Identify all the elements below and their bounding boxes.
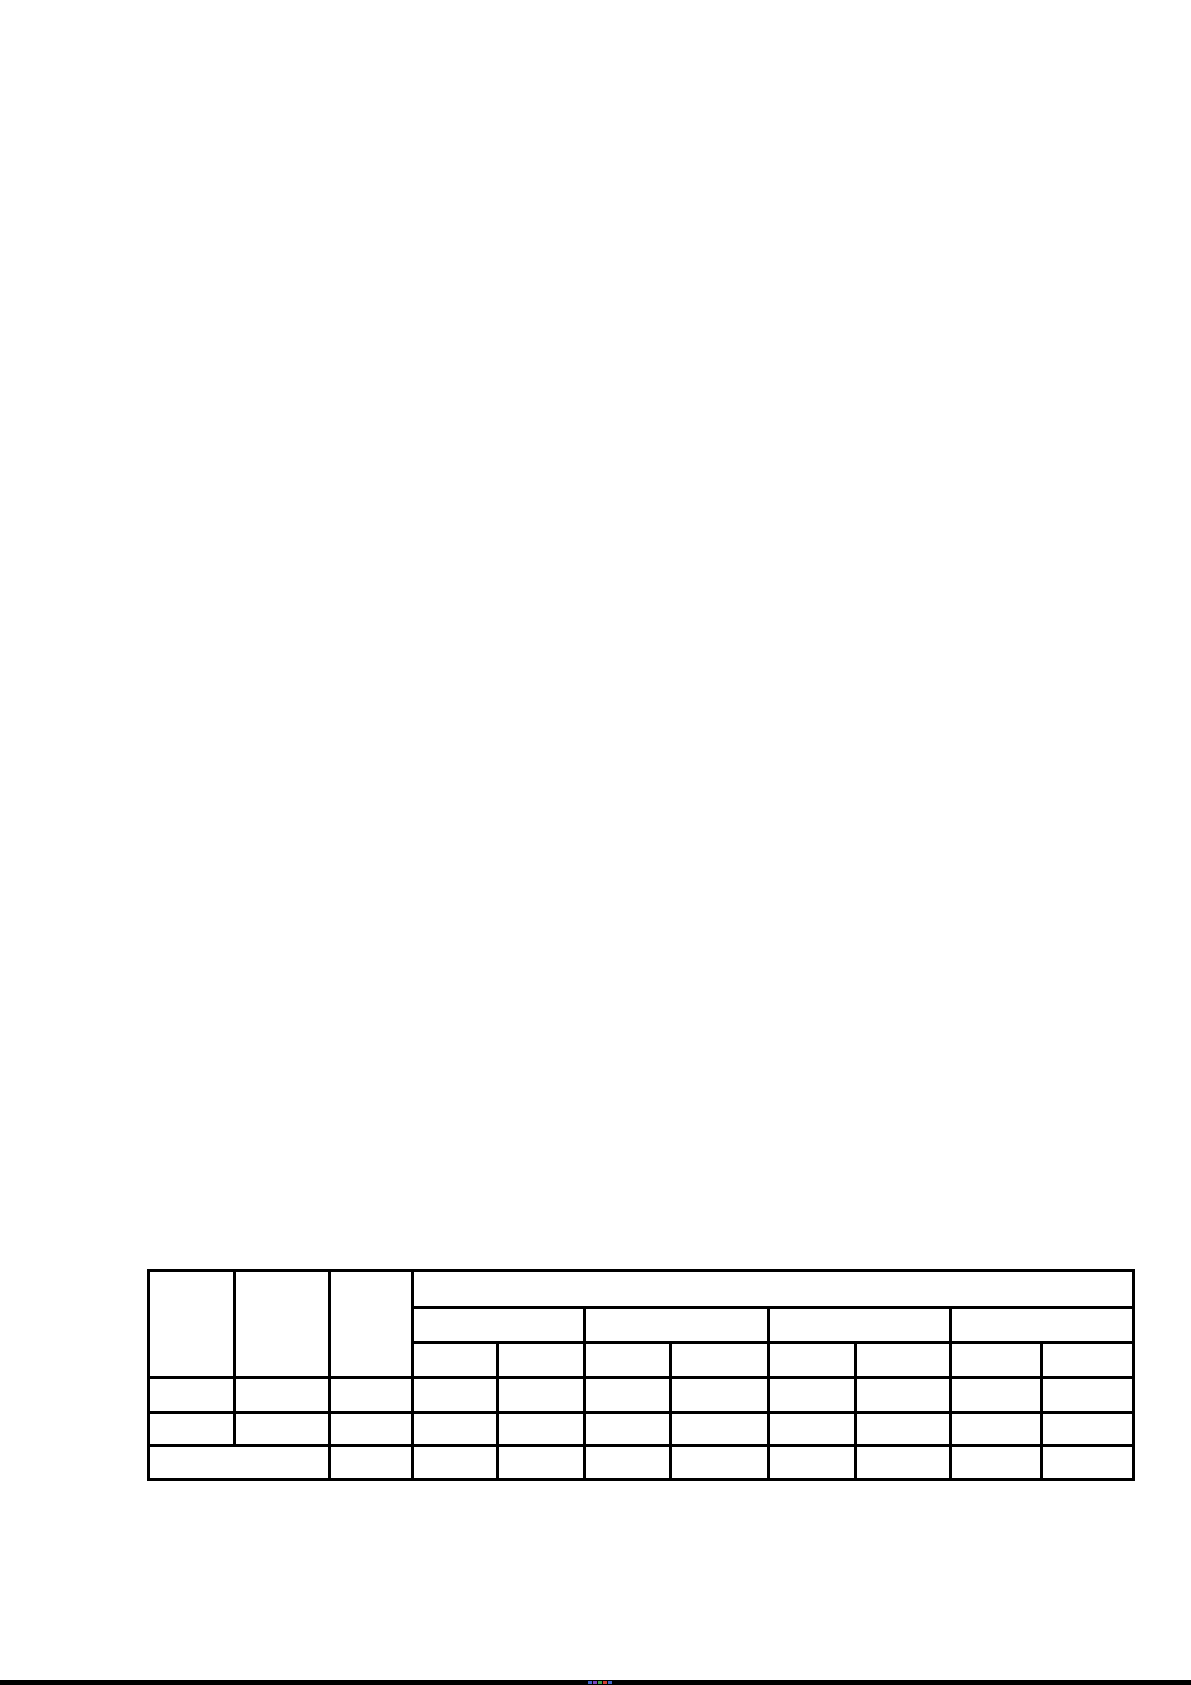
table-cell	[585, 1308, 769, 1343]
table-cell	[671, 1343, 769, 1378]
table-cell	[149, 1378, 235, 1413]
table-cell	[413, 1413, 498, 1446]
table-cell	[413, 1378, 498, 1413]
table-cell	[769, 1378, 856, 1413]
table-cell	[769, 1308, 951, 1343]
table-cell	[1042, 1446, 1134, 1480]
table-row	[149, 1413, 1134, 1446]
table-cell	[235, 1413, 330, 1446]
document-table	[147, 1269, 1135, 1481]
table-cell	[413, 1446, 498, 1480]
taskbar-icon-pixel	[603, 1681, 607, 1684]
document-page	[0, 0, 1191, 1685]
table-cell	[856, 1413, 951, 1446]
table-cell	[413, 1271, 1134, 1308]
table-cell	[235, 1271, 330, 1378]
table-row	[149, 1271, 1134, 1308]
taskbar-icon-pixel	[593, 1681, 597, 1684]
table-cell	[1042, 1413, 1134, 1446]
table-cell	[671, 1413, 769, 1446]
table-cell	[330, 1378, 413, 1413]
table-cell	[413, 1343, 498, 1378]
table-cell	[1042, 1378, 1134, 1413]
taskbar-icon-pixel	[598, 1681, 602, 1684]
table-body	[149, 1271, 1134, 1480]
table-cell	[413, 1308, 585, 1343]
table-cell	[330, 1413, 413, 1446]
table-cell	[951, 1446, 1042, 1480]
table-cell	[856, 1446, 951, 1480]
table-cell	[951, 1378, 1042, 1413]
table-cell	[769, 1413, 856, 1446]
table-cell	[330, 1446, 413, 1480]
table-cell	[235, 1378, 330, 1413]
table-row	[149, 1446, 1134, 1480]
table-cell	[769, 1343, 856, 1378]
table-cell	[498, 1446, 585, 1480]
table-cell	[498, 1378, 585, 1413]
table-cell	[585, 1343, 671, 1378]
table-cell	[149, 1446, 330, 1480]
taskbar-icon-pixel	[588, 1681, 592, 1684]
taskbar-icon-pixel	[608, 1681, 612, 1684]
table-cell	[951, 1343, 1042, 1378]
table-cell	[585, 1378, 671, 1413]
table-cell	[951, 1413, 1042, 1446]
table-cell	[149, 1413, 235, 1446]
table-cell	[951, 1308, 1134, 1343]
table-cell	[149, 1271, 235, 1378]
table-cell	[856, 1378, 951, 1413]
taskbar-edge	[0, 1680, 1191, 1685]
table-cell	[856, 1343, 951, 1378]
table-cell	[498, 1413, 585, 1446]
table-cell	[1042, 1343, 1134, 1378]
table-cell	[330, 1271, 413, 1378]
table-cell	[585, 1413, 671, 1446]
table-row	[149, 1378, 1134, 1413]
table-cell	[585, 1446, 671, 1480]
table-cell	[769, 1446, 856, 1480]
table-cell	[498, 1343, 585, 1378]
table-cell	[671, 1446, 769, 1480]
table-cell	[671, 1378, 769, 1413]
